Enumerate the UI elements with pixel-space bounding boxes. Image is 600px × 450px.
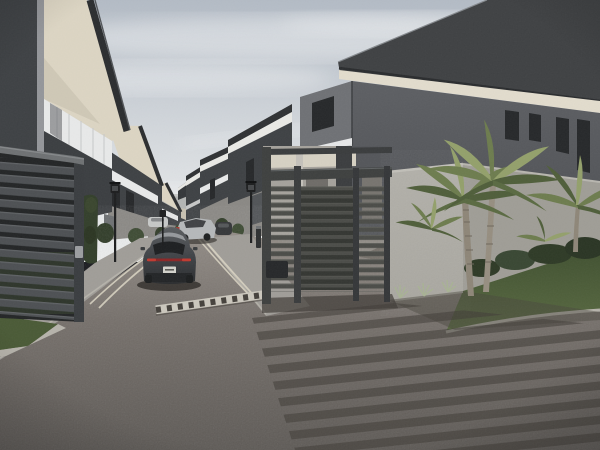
render-canvas <box>0 0 600 450</box>
vignette-overlay <box>0 0 600 450</box>
architectural-render <box>0 0 600 450</box>
